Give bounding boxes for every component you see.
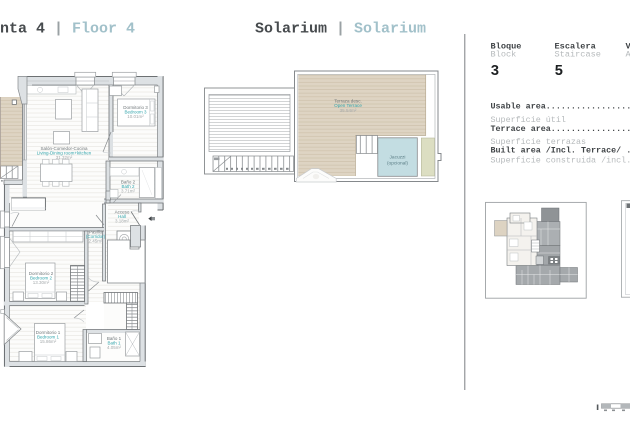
svg-text:Staircase: Staircase [555,50,601,60]
svg-text:Solarium | Solarium: Solarium | Solarium [255,21,426,38]
svg-text:Built area /Incl. Terrace/ ...: Built area /Incl. Terrace/ .......... [491,146,630,156]
svg-text:Block: Block [491,50,517,60]
svg-text:2.45m²: 2.45m² [88,238,103,243]
svg-text:15.86m²: 15.86m² [40,339,57,344]
svg-text:3.18m²: 3.18m² [115,218,130,223]
svg-text:Apartment: Apartment [626,50,630,60]
svg-text:10.01m²: 10.01m² [127,114,144,119]
svg-text:Planta 4 | Floor 4: Planta 4 | Floor 4 [0,21,135,38]
svg-text:31.32m²: 31.32m² [56,155,73,160]
svg-text:13.30m²: 13.30m² [33,280,50,285]
svg-text:3.71m²: 3.71m² [121,188,136,193]
svg-text:Usable area...................: Usable area.......................... [491,102,630,112]
svg-text:Jacuzzi: Jacuzzi [390,154,406,160]
svg-text:Superficie construida /incl. t: Superficie construida /incl. terraza [491,156,630,166]
svg-text:Terrace area..................: Terrace area......................... [491,124,630,134]
svg-text:(opcional): (opcional) [387,161,408,167]
svg-text:35.54m²: 35.54m² [340,108,357,113]
svg-text:3: 3 [491,64,500,80]
svg-text:4.05m²: 4.05m² [107,345,122,350]
svg-text:5: 5 [555,64,564,80]
